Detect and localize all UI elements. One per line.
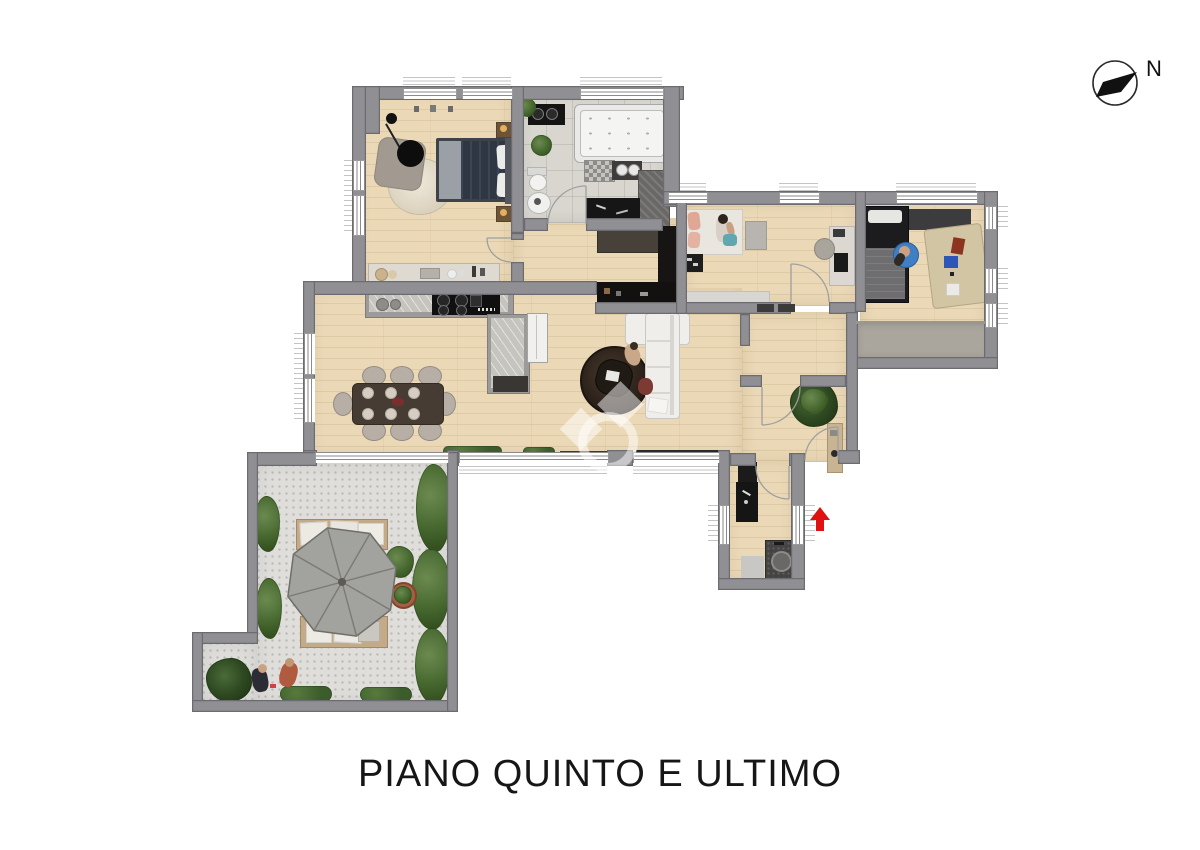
refrigerator-door-line	[536, 315, 537, 359]
window-sill	[294, 333, 303, 421]
nightstand-lamp	[500, 125, 507, 132]
terrace-person-head	[285, 658, 294, 667]
dresser-plate	[388, 270, 397, 279]
rug-pattern	[693, 263, 698, 266]
window-sill	[459, 466, 607, 476]
terrace-bush-tall	[415, 628, 450, 704]
windowsill-decor	[414, 106, 419, 112]
window-sill	[998, 206, 1008, 228]
bed-sheet	[439, 141, 461, 199]
bedroom2-teal-blanket	[723, 234, 737, 246]
window-sill	[462, 77, 511, 86]
kitchen-sink	[390, 299, 401, 310]
terrace-toy	[270, 684, 276, 688]
sliding-door-leaf	[757, 304, 774, 312]
terrace-person-head	[258, 664, 267, 673]
window	[462, 88, 513, 99]
toilet-bowl	[529, 174, 547, 191]
place-setting	[408, 387, 420, 399]
window-sill	[896, 183, 976, 191]
wall	[511, 86, 524, 233]
place-setting	[408, 408, 420, 420]
window-sill	[779, 183, 818, 191]
sofa-cushion-line	[647, 340, 671, 342]
window	[668, 192, 708, 203]
dresser-tray	[420, 268, 440, 279]
dresser-bottle	[472, 266, 476, 277]
wall	[730, 453, 756, 466]
window-sill	[708, 505, 718, 543]
nightstand-lamp	[500, 209, 507, 216]
dresser-dish	[459, 270, 465, 276]
window	[896, 192, 978, 203]
windowsill-decor	[430, 105, 436, 112]
washer-handle	[774, 542, 784, 545]
burner	[456, 305, 467, 316]
bedroom2-pillow	[687, 232, 700, 249]
wall	[740, 375, 762, 387]
sofa-cushion-line	[647, 366, 671, 368]
wall	[848, 357, 998, 369]
vanity-sink	[546, 108, 558, 120]
terrace-door-window	[315, 452, 449, 463]
wall	[192, 700, 458, 712]
compass-needle	[1096, 72, 1137, 97]
floor-title: PIANO QUINTO E ULTIMO	[0, 753, 1200, 796]
window	[353, 160, 365, 191]
balcony-floor	[856, 323, 990, 359]
window	[779, 192, 820, 203]
window-sill	[580, 77, 662, 86]
wall	[586, 218, 663, 231]
desk-blue-item	[944, 256, 958, 268]
laundry-mat	[741, 556, 764, 580]
peninsula-end-cabinet	[493, 376, 528, 392]
bedroom2-gray-rug	[745, 221, 767, 250]
wall	[838, 450, 860, 464]
desk-paper	[946, 283, 960, 296]
window	[353, 195, 365, 236]
desk-lamp	[833, 229, 845, 237]
window-sill	[633, 466, 718, 476]
floor-lamp-shade	[397, 140, 424, 167]
console-item	[830, 430, 838, 436]
window	[633, 452, 720, 463]
place-setting	[362, 387, 374, 399]
sliding-door-leaf	[778, 304, 795, 312]
window-sill	[998, 268, 1008, 292]
wardrobe-item	[604, 288, 610, 294]
window	[580, 88, 664, 99]
bidet-drain	[534, 198, 541, 205]
hallway-plant-leaves	[800, 388, 828, 414]
floorplan-canvas: N PIANO QUINTO E ULTIMO	[0, 0, 1200, 850]
dresser-bottle	[480, 268, 485, 276]
bathroom-plant	[531, 135, 552, 156]
window	[985, 303, 997, 328]
bathtub-basin	[580, 110, 664, 157]
terrace-bush-tall	[412, 549, 450, 630]
north-compass: N	[1088, 48, 1178, 118]
place-setting	[385, 408, 397, 420]
console-mirror	[831, 450, 838, 457]
desk-laptop	[834, 253, 848, 272]
planter-greenery	[394, 586, 412, 604]
wall	[676, 198, 687, 314]
table-centerpiece	[392, 398, 404, 406]
wall	[800, 375, 846, 387]
wardrobe-item	[640, 292, 648, 296]
red-pouf	[638, 378, 653, 395]
wall	[855, 191, 866, 312]
cooktop-knobs	[478, 308, 495, 311]
washer-drum	[771, 551, 792, 572]
bathroom-mosaic	[584, 160, 615, 182]
wall	[303, 281, 597, 295]
compass-north-label: N	[1146, 56, 1162, 81]
desk-small-item	[950, 272, 954, 276]
sofa-backrest	[670, 315, 674, 415]
window	[792, 505, 804, 545]
wall	[247, 452, 258, 644]
sofa-pillow	[647, 397, 669, 415]
refrigerator	[527, 313, 548, 363]
windowsill-decor	[448, 106, 453, 112]
window	[985, 206, 997, 230]
washer-knob	[616, 164, 628, 176]
watermark-ring	[578, 412, 638, 472]
wall	[740, 314, 750, 346]
wall	[663, 86, 680, 207]
entrance-arrow-stem	[816, 520, 824, 531]
oven-icon	[470, 295, 482, 307]
window-sill	[998, 303, 1008, 326]
lounge-laptop	[605, 370, 620, 382]
window-sill	[403, 77, 455, 86]
window	[304, 333, 315, 375]
bedroom2-pillow	[687, 211, 701, 230]
wall	[524, 218, 548, 231]
balcony-threshold	[856, 321, 988, 324]
corner-leafy-plant	[206, 658, 252, 702]
dining-chair	[333, 392, 353, 416]
wall	[447, 452, 458, 712]
window	[985, 268, 997, 294]
wardrobe-item	[616, 291, 621, 296]
dresser-plate	[375, 268, 388, 281]
rug-pattern	[687, 258, 692, 261]
wall	[718, 578, 805, 590]
window	[304, 378, 315, 423]
laundry-drain	[744, 500, 748, 504]
kitchen-sink	[376, 298, 389, 311]
patio-umbrella	[272, 512, 412, 652]
lounge-person-hair	[630, 342, 638, 350]
bedroom2-desk-chair	[814, 238, 835, 260]
burner	[438, 305, 449, 316]
window	[719, 505, 729, 545]
window	[403, 88, 457, 99]
wall	[846, 312, 858, 460]
bedroom3-pillow	[868, 210, 902, 223]
entrance-arrow-head	[810, 507, 830, 520]
dresser-dish	[447, 269, 457, 279]
wall	[511, 233, 524, 240]
place-setting	[362, 408, 374, 420]
floor-lamp-base	[386, 113, 397, 124]
